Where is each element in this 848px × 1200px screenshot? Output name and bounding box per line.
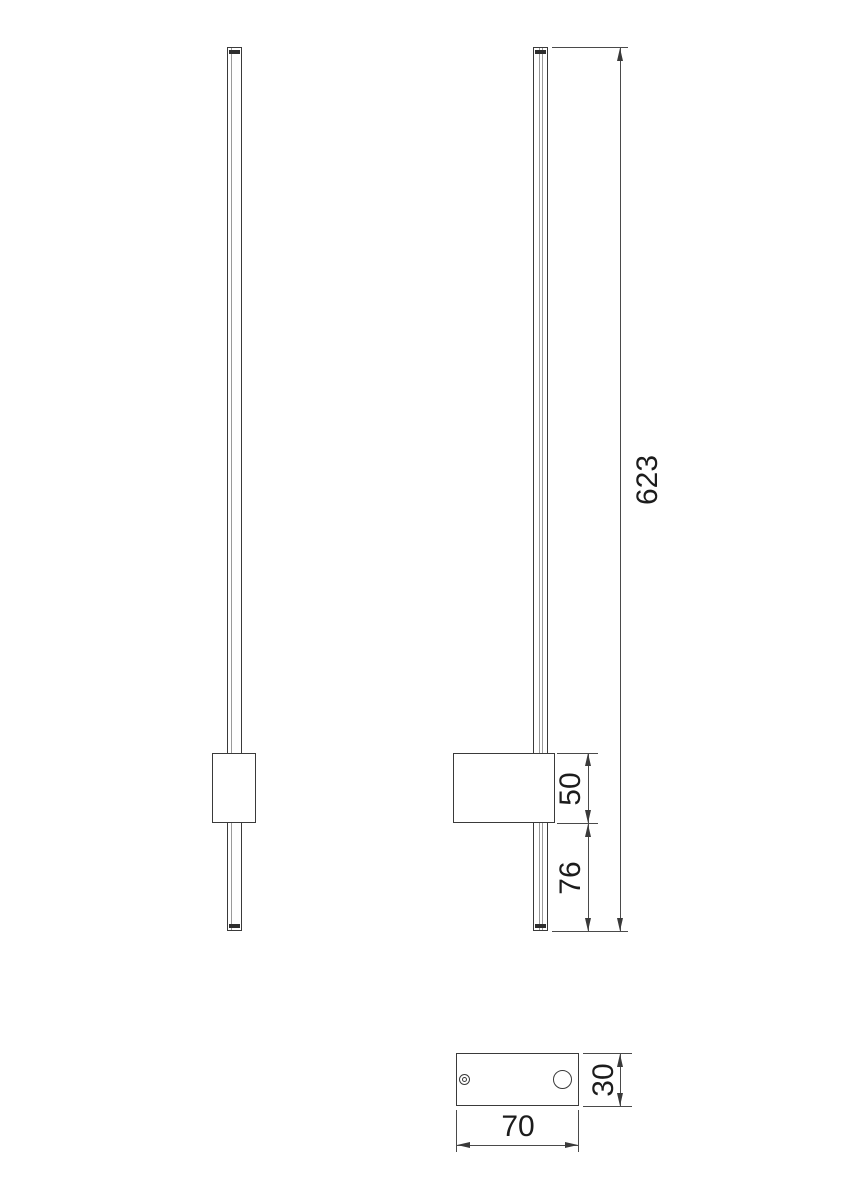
arrow-right-icon [565, 1142, 578, 1148]
dim-line-plate-width [456, 1145, 579, 1146]
dim-label-plate-width: 70 [501, 1112, 534, 1142]
ext-line-bottom [552, 931, 628, 932]
arrow-left-icon [457, 1142, 470, 1148]
dim-label-total-height: 623 [633, 455, 663, 505]
screw-hole-center-icon [462, 1077, 467, 1082]
dim-line-total-height [620, 48, 621, 931]
front-view-bottom-endcap [229, 924, 240, 928]
side-view-wall-bracket [453, 753, 555, 823]
arrow-up-icon [585, 824, 591, 837]
side-view-bottom-endcap [535, 924, 546, 928]
front-view-wall-bracket [212, 753, 256, 823]
dim-line-below-bracket [588, 823, 589, 931]
ext-line-plate-bottom [583, 1106, 632, 1107]
technical-drawing-canvas: 623 50 76 70 3 [0, 0, 848, 1200]
front-view-top-endcap [229, 50, 240, 54]
dim-label-below-bracket: 76 [556, 861, 586, 894]
ext-line-plate-top [583, 1053, 632, 1054]
ext-line-bracket-top [557, 753, 598, 754]
arrow-up-icon [585, 753, 591, 766]
arrow-down-icon [617, 918, 623, 931]
cable-hole-icon [553, 1070, 572, 1089]
side-view-top-endcap [535, 50, 546, 54]
arrow-down-icon [585, 810, 591, 823]
dim-label-bracket-height: 50 [556, 772, 586, 805]
arrow-up-icon [617, 48, 623, 61]
dim-label-plate-depth: 30 [589, 1063, 619, 1096]
ext-line-bracket-bottom [557, 823, 598, 824]
arrow-down-icon [585, 918, 591, 931]
